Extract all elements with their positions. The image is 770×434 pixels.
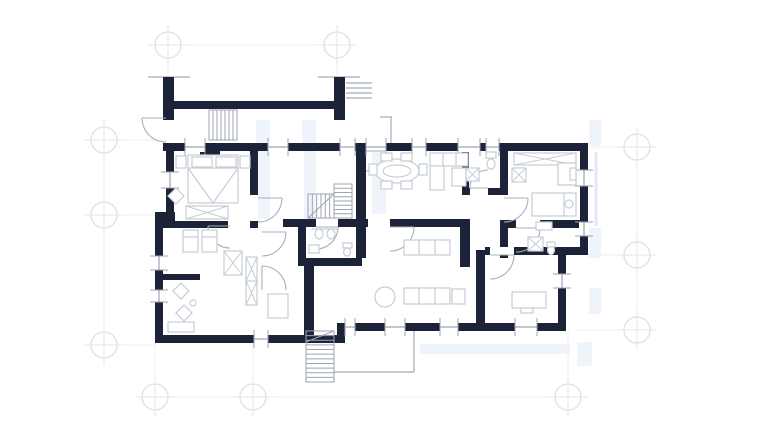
kitchen-island (452, 168, 466, 186)
door-opening (228, 221, 250, 228)
window-seat-cushion (570, 168, 576, 180)
upper-floor-ghost (577, 342, 592, 366)
nightstand (240, 156, 250, 168)
upper-floor-ghost (258, 151, 270, 219)
single-bed (183, 230, 198, 252)
wall (304, 266, 314, 335)
dining-table-inner (383, 165, 411, 177)
wall (356, 143, 366, 258)
upper-floor-ghost (302, 120, 316, 143)
wall (155, 335, 345, 343)
wall (558, 255, 566, 331)
upper-floor-ghost (589, 120, 601, 146)
wall (250, 143, 258, 195)
wall (163, 77, 174, 120)
desk (512, 292, 546, 308)
bench (168, 322, 194, 332)
kitchen-cabinet (430, 166, 444, 190)
wall (580, 143, 588, 255)
nightstand (536, 222, 552, 230)
wall (167, 101, 345, 109)
chair (369, 164, 377, 175)
sink (315, 229, 323, 239)
dresser (268, 294, 288, 318)
pillow (192, 157, 212, 167)
bidet (309, 245, 319, 253)
toilet-tank (343, 243, 352, 248)
stool (190, 300, 196, 306)
wall (476, 250, 485, 325)
floor-plan-svg (0, 0, 770, 434)
wall (460, 223, 470, 267)
pillow (565, 200, 573, 208)
sofa (404, 240, 450, 255)
toilet (344, 248, 351, 256)
sofa (404, 288, 450, 304)
toilet (487, 159, 495, 169)
upper-floor-ghost (420, 344, 570, 354)
toilet-tank (486, 152, 496, 158)
floor-plan-viewport (0, 0, 770, 434)
background (0, 0, 770, 434)
door-opening (500, 195, 508, 220)
wall (155, 218, 163, 343)
wall (298, 227, 306, 266)
coffee-table (375, 287, 395, 307)
pillow (216, 157, 236, 167)
kitchen-counter (430, 153, 468, 166)
toilet-tank (547, 242, 555, 247)
nightstand (176, 156, 186, 168)
chair (419, 164, 427, 175)
chair (381, 153, 392, 161)
chair (401, 153, 412, 161)
door-opening (490, 247, 514, 255)
wall (300, 258, 362, 266)
wall (334, 77, 345, 120)
single-bed (202, 230, 217, 252)
upper-floor-ghost (304, 151, 316, 219)
chair (401, 181, 412, 189)
door-opening (316, 219, 338, 227)
sink (327, 229, 335, 239)
upper-floor-ghost (589, 288, 601, 314)
upper-floor-ghost (589, 228, 601, 258)
desk-chair (521, 308, 533, 313)
wall (390, 219, 470, 227)
armchair (452, 289, 465, 304)
chair (381, 181, 392, 189)
wall (155, 274, 200, 280)
door-opening (470, 188, 488, 195)
